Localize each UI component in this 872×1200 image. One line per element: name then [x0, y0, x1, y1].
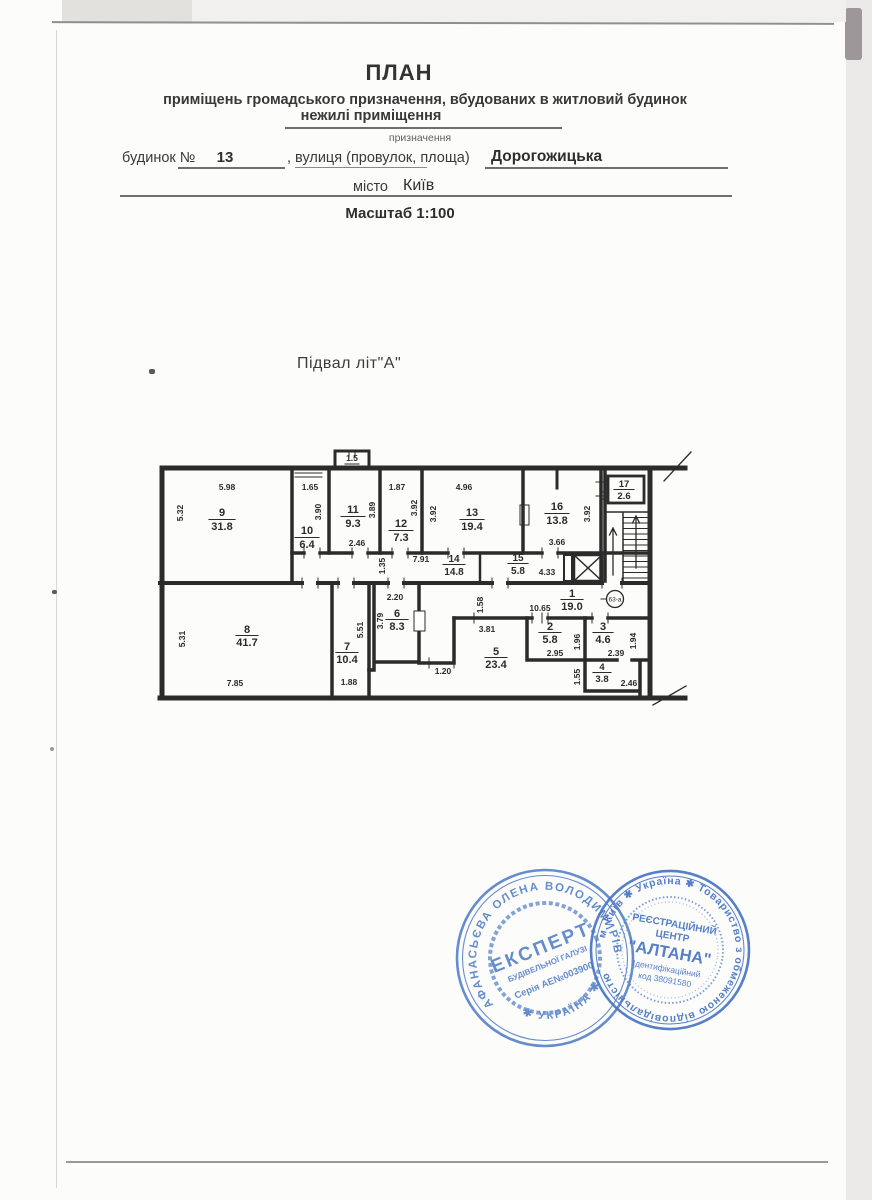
floor-plan-drawing: 9 31.8 10 6.4 11 9.3 12 7.3 13 19.4 16 1… [152, 448, 692, 710]
dim-label: 3.79 [375, 612, 385, 629]
room-number: 4 [599, 662, 605, 673]
room-number: 6 [394, 608, 400, 620]
room-area: 3.8 [595, 674, 608, 685]
room-area: 7.3 [393, 532, 408, 544]
city-underline [120, 195, 732, 197]
room-area: 31.8 [211, 521, 232, 533]
room-area: 14.8 [444, 567, 464, 578]
purpose-underline [285, 127, 562, 129]
street-label: , вулиця (провулок, площа) [287, 150, 470, 166]
scale-label: Масштаб 1:100 [300, 205, 500, 222]
city-label: місто [353, 179, 388, 195]
scan-artifact [149, 369, 155, 374]
scan-right-edge [846, 0, 872, 1200]
dim-label: 4.96 [456, 482, 473, 492]
scan-corner-smudge [845, 8, 862, 60]
dim-label: 7.85 [227, 678, 244, 688]
scan-top-left-patch [62, 0, 192, 22]
room-area: 4.6 [595, 634, 610, 646]
stamps-area: м. Київ ✱ Україна ✱ Товариство з обмежен… [440, 848, 770, 1066]
dim-label: 1.20 [435, 666, 452, 676]
room-area: 8.3 [389, 621, 404, 633]
purpose-value: нежилі приміщення [285, 108, 457, 124]
room-number: 3 [600, 621, 606, 633]
purpose-caption: призначення [330, 132, 510, 144]
room-number: 2 [547, 621, 553, 633]
dim-label: 3.92 [428, 505, 438, 522]
room-area: 41.7 [236, 637, 257, 649]
room-number: 7 [344, 641, 350, 653]
room-area: 5.8 [511, 566, 525, 577]
room-number: 5 [493, 646, 499, 658]
room-area: 19.4 [461, 521, 483, 533]
room-area: 6.4 [299, 539, 315, 551]
page-subtitle: приміщень громадського призначення, вбуд… [120, 92, 730, 108]
dim-label: 3.92 [409, 499, 419, 516]
room-area: 10.4 [336, 654, 358, 666]
dim-label: 2.95 [547, 648, 564, 658]
dim-label: 2.46 [349, 538, 366, 548]
dim-label: 1.58 [475, 596, 485, 613]
dim-label: 5.98 [219, 482, 236, 492]
room-number: 15 [512, 553, 524, 564]
dim-label: 3.66 [549, 537, 566, 547]
dim-label: 3.89 [367, 501, 377, 518]
dim-label: 2.39 [608, 648, 625, 658]
room-number: 1 [569, 588, 575, 600]
dim-label: 5.31 [177, 630, 187, 647]
building-number: 13 [185, 149, 265, 166]
dim-label: 3.90 [313, 503, 323, 520]
scan-frame-line-top [52, 21, 834, 25]
room-area: 5.8 [542, 634, 557, 646]
dim-label: 10.65 [529, 603, 551, 613]
paper-fold-line [56, 30, 57, 1188]
scan-artifact [50, 747, 54, 751]
room-number: 16 [551, 501, 563, 513]
room-area: 19.0 [561, 601, 582, 613]
dim-label: 1.35 [377, 557, 387, 574]
plan-caption: Підвал літ"А" [297, 355, 401, 373]
vestibule-area: 1.5 [346, 453, 358, 463]
dim-label: 4.33 [539, 567, 556, 577]
room-area: 13.8 [546, 515, 567, 527]
dim-label: 1.65 [302, 482, 319, 492]
city-value: Київ [403, 177, 434, 195]
page-title: ПЛАН [299, 60, 499, 86]
premises-badge: 63-а [608, 597, 621, 604]
scan-frame-line-bottom [66, 1161, 828, 1163]
room-area: 23.4 [485, 659, 507, 671]
room-number: 14 [448, 554, 460, 565]
room-number: 8 [244, 624, 250, 636]
room-number: 9 [219, 507, 225, 519]
scanned-document-page: ПЛАН приміщень громадського призначення,… [0, 0, 872, 1200]
dim-label: 2.20 [387, 592, 404, 602]
dim-label: 1.55 [572, 668, 582, 685]
room-number: 13 [466, 507, 478, 519]
room-number: 12 [395, 518, 407, 530]
dim-label: 1.88 [341, 677, 358, 687]
dim-label: 1.96 [572, 633, 582, 650]
room-number: 11 [347, 504, 359, 516]
dim-label: 7.91 [413, 554, 430, 564]
dim-label: 3.92 [582, 505, 592, 522]
dim-label: 5.51 [355, 621, 365, 638]
dim-label: 2.46 [621, 678, 638, 688]
plan-walls [160, 451, 691, 705]
dim-label: 1.94 [628, 632, 638, 649]
street-underline [485, 167, 728, 169]
dim-label: 3.81 [479, 624, 496, 634]
room-number: 17 [619, 479, 630, 490]
dim-label: 1.87 [389, 482, 406, 492]
expert-stamp: АФАНАСЬЄВА ОЛЕНА ВОЛОДИМИРІВНА ✱ УКРАЇНА… [440, 848, 660, 1066]
street-value: Дорогожицька [491, 148, 602, 166]
room-number: 10 [301, 525, 313, 537]
building-number-underline [178, 167, 285, 169]
scan-artifact [52, 590, 57, 594]
room-area: 9.3 [345, 518, 360, 530]
street-label-underline [295, 167, 427, 168]
dim-label: 5.32 [175, 504, 185, 521]
room-area: 2.6 [617, 491, 630, 502]
